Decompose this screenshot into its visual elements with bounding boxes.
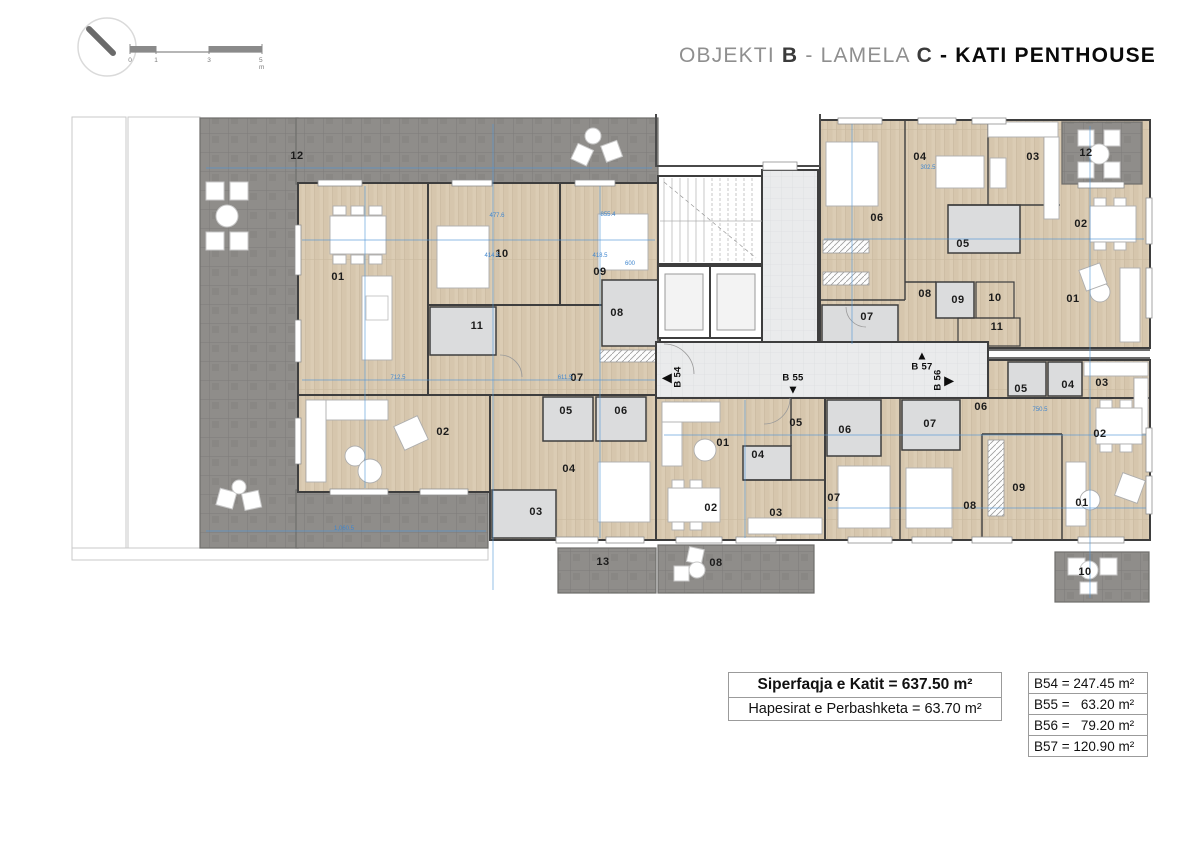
unit-area-row-b56: B56 = 79.20 m² [1028, 715, 1148, 736]
floor-plan-drawing [0, 0, 1192, 843]
floor-summary-table: Siperfaqja e Katit = 637.50 m² Hapesirat… [728, 672, 1002, 721]
floor-plan-sheet: 0 1 3 5 m OBJEKTI B - LAMELA C - KATI PE… [0, 0, 1192, 843]
unit-area-row-b54: B54 = 247.45 m² [1028, 672, 1148, 694]
unit-areas-table: B54 = 247.45 m² B55 = 63.20 m² B56 = 79.… [1028, 672, 1148, 757]
total-area-row: Siperfaqja e Katit = 637.50 m² [729, 673, 1001, 697]
common-area-row: Hapesirat e Perbashketa = 63.70 m² [729, 697, 1001, 720]
unit-area-row-b57: B57 = 120.90 m² [1028, 736, 1148, 757]
unit-area-row-b55: B55 = 63.20 m² [1028, 694, 1148, 715]
